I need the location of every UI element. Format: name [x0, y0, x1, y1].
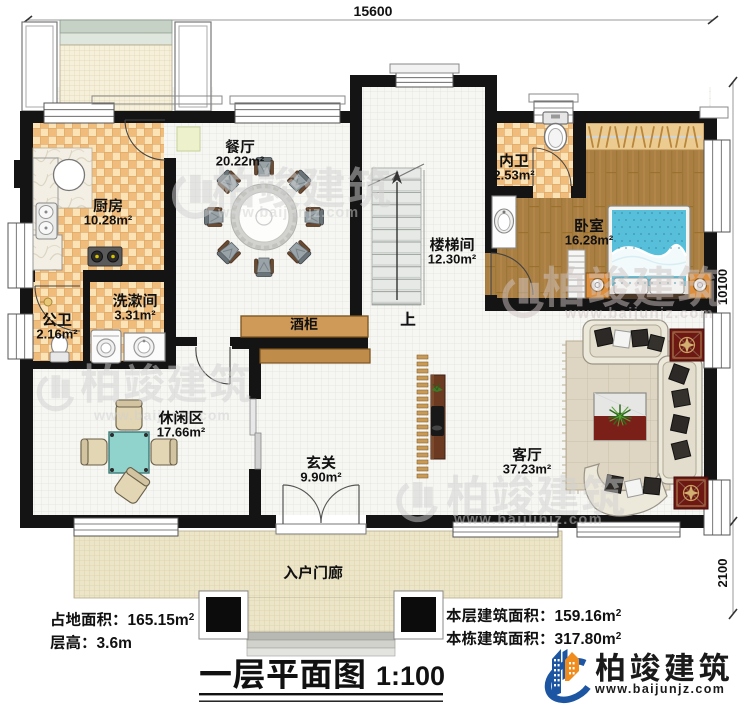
- svg-text:占地面积：165.15m2: 占地面积：165.15m2: [50, 608, 195, 630]
- svg-text:酒柜: 酒柜: [290, 314, 318, 334]
- svg-text:www.baijunjz.com: www.baijunjz.com: [594, 682, 725, 696]
- svg-text:2.53m²: 2.53m²: [493, 168, 535, 183]
- svg-text:1:100: 1:100: [376, 661, 445, 691]
- svg-text:上: 上: [400, 306, 416, 330]
- svg-text:16.28m²: 16.28m²: [565, 233, 614, 248]
- svg-text:17.66m²: 17.66m²: [157, 425, 206, 440]
- svg-text:层高：3.6m: 层高：3.6m: [50, 631, 132, 653]
- svg-text:10.28m²: 10.28m²: [84, 213, 133, 228]
- svg-text:37.23m²: 37.23m²: [503, 462, 552, 477]
- svg-text:20.22m²: 20.22m²: [216, 154, 265, 169]
- svg-text:15600: 15600: [354, 3, 393, 19]
- svg-text:9.90m²: 9.90m²: [300, 470, 342, 485]
- svg-text:本层建筑面积：159.16m2: 本层建筑面积：159.16m2: [446, 604, 622, 626]
- svg-text:3.31m²: 3.31m²: [114, 308, 156, 323]
- svg-text:2.16m²: 2.16m²: [36, 327, 78, 342]
- svg-text:2100: 2100: [715, 559, 730, 588]
- svg-text:一层平面图: 一层平面图: [199, 648, 367, 696]
- svg-text:www.baijunjz.com: www.baijunjz.com: [453, 512, 603, 528]
- svg-text:柏竣建筑: 柏竣建筑: [80, 351, 252, 412]
- svg-text:www.baijunjz.com: www.baijunjz.com: [217, 205, 359, 221]
- svg-text:www.baijunjz.com: www.baijunjz.com: [564, 306, 714, 322]
- svg-text:入户门廊: 入户门廊: [283, 562, 343, 583]
- svg-text:12.30m²: 12.30m²: [428, 252, 477, 267]
